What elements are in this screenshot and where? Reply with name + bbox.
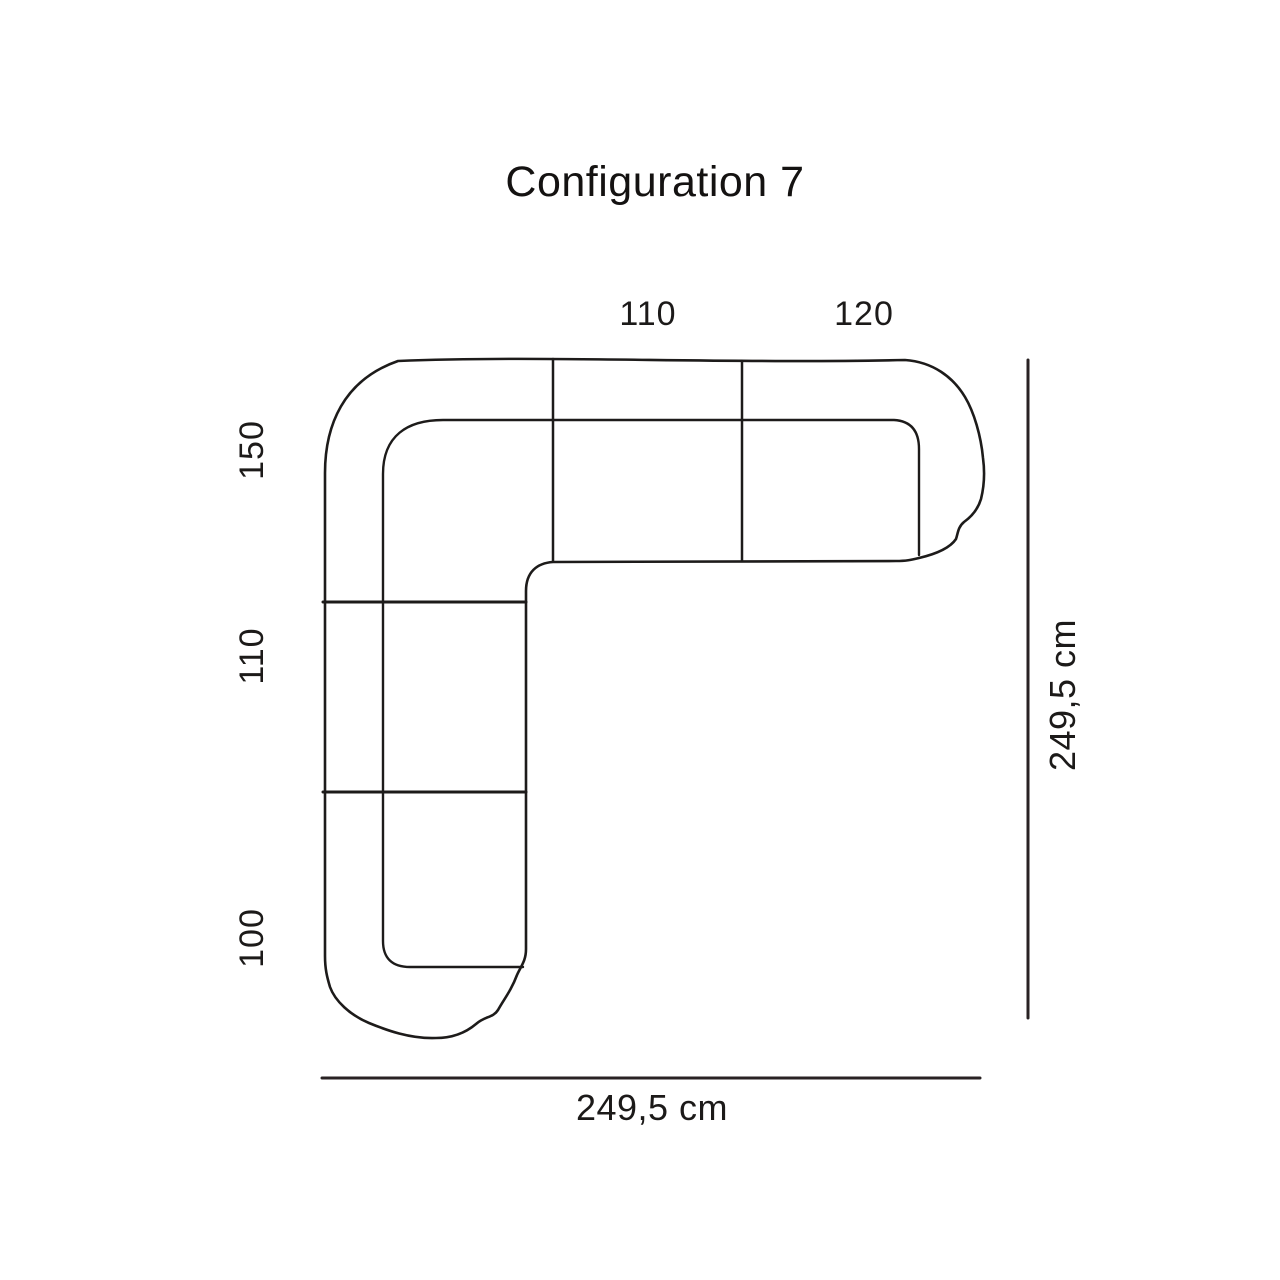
dim-label-top-section-120: 120 [764,294,964,334]
sofa-backrest-line [383,420,919,967]
dim-label-top-section-110: 110 [548,294,748,334]
dim-label-total-width: 249,5 cm [552,1088,752,1128]
dim-label-left-section-100: 100 [232,838,272,1038]
dim-label-left-section-150: 150 [232,350,272,550]
page: Configuration 7 110 120 150 110 100 249,… [0,0,1280,1280]
dim-label-total-height: 249,5 cm [1043,595,1083,795]
sofa-outline [325,359,984,1038]
page-title: Configuration 7 [375,158,935,207]
dim-label-left-section-110: 110 [232,556,272,756]
